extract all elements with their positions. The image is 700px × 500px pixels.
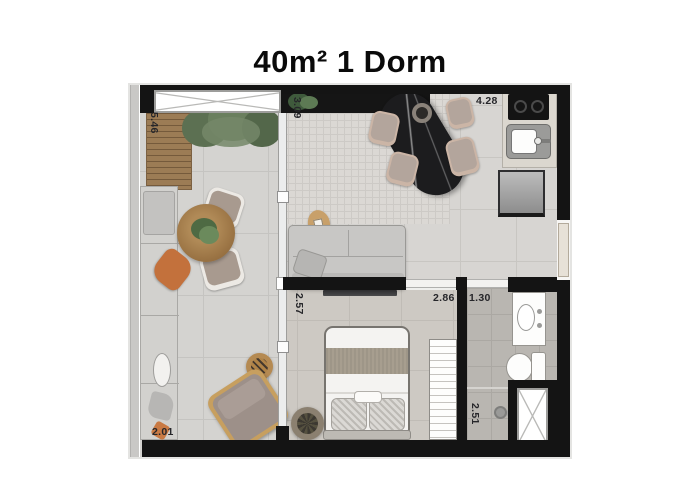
chair-seat: [447, 98, 474, 126]
dim-bathroom-depth: 2.51: [469, 403, 481, 425]
round-rug: [291, 407, 324, 440]
faucet-icon: [537, 309, 542, 314]
tv-panel: [323, 290, 397, 296]
faucet-icon: [537, 323, 542, 328]
dim-bedroom-width: 2.86: [433, 292, 455, 304]
chair-seat: [446, 137, 478, 173]
dim-balcony-length: 5.46: [148, 112, 160, 134]
toilet-tank: [531, 352, 546, 383]
burner-icon: [531, 100, 544, 113]
bench-divider: [141, 315, 179, 316]
throw-blanket: [146, 390, 176, 421]
bed-accent-pillow: [354, 391, 382, 403]
dim-bedroom-depth: 2.57: [293, 293, 305, 315]
living-bedroom-wall: [283, 277, 406, 290]
bush-icon: [202, 117, 260, 147]
bathroom-door: [467, 279, 508, 288]
bedroom-bathroom-wall: [457, 277, 467, 457]
chair-seat: [370, 112, 399, 143]
balcony-window: [154, 90, 281, 113]
burner-icon: [514, 100, 527, 113]
bed-blanket: [326, 348, 408, 374]
entry-door-leaf: [558, 223, 569, 277]
balcony-bench: [140, 186, 178, 440]
dim-bathroom-width: 1.30: [469, 292, 491, 304]
table-centerpiece: [412, 103, 432, 123]
page-title: 40m² 1 Dorm: [0, 44, 700, 80]
potted-plant-icon: [199, 226, 219, 244]
dim-living-depth: 3.09: [291, 97, 303, 119]
vase-icon: [153, 353, 171, 387]
kitchen-sink: [506, 124, 551, 159]
window-x-glyph: [519, 390, 546, 442]
rug-center: [297, 413, 318, 434]
fridge-handle: [502, 208, 512, 211]
apartment-floor-plan: 5.46 3.09 4.28 2.57 2.86 1.30 2.01 2.51: [130, 85, 570, 457]
toilet: [506, 352, 546, 383]
bedroom-door: [406, 279, 456, 288]
balcony-round-table: [177, 204, 235, 262]
refrigerator: [498, 170, 545, 217]
dim-balcony-width: 2.01: [152, 426, 174, 438]
faucet-knob: [534, 137, 542, 145]
bathroom-window: [517, 388, 548, 444]
dim-kitchen-width: 4.28: [476, 95, 498, 107]
chair-seat: [387, 152, 418, 183]
window-x-glyph: [156, 92, 279, 111]
entry-door: [557, 220, 570, 280]
headboard: [323, 430, 411, 440]
toilet-bowl: [506, 353, 533, 382]
sink-basin-oval: [517, 304, 535, 331]
bench-divider: [141, 243, 179, 244]
shower-knob: [494, 406, 507, 419]
floor-plan-page: { "title": "40m² 1 Dorm", "dimensions": …: [0, 0, 700, 500]
bottom-wall: [142, 440, 570, 457]
sofa-cushion-line: [348, 230, 349, 256]
wardrobe: [429, 339, 457, 440]
bench-cushion: [143, 191, 175, 235]
cooktop-icon: [508, 94, 549, 120]
balcony-railing: [130, 85, 140, 457]
door-handle-icon: [277, 191, 289, 203]
bathroom-vanity: [512, 292, 546, 346]
door-handle-icon: [277, 341, 289, 353]
bed: [324, 326, 410, 438]
bathroom-north-wall: [508, 277, 557, 292]
shower-divider-line: [467, 387, 508, 389]
sliding-glass-partition: [278, 94, 287, 440]
